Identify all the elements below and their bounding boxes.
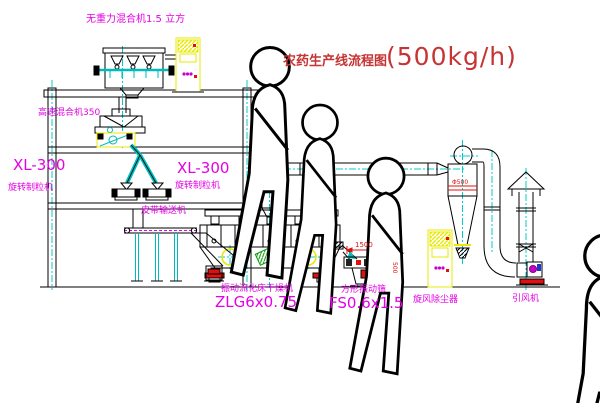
fan-name-label: 引风机 <box>512 295 539 304</box>
granulator-left-unit <box>112 183 140 200</box>
high-speed-mixer <box>95 109 145 147</box>
dryer-model-label: ZLG6x0.75 <box>215 295 297 310</box>
control-cabinet-top <box>172 38 204 92</box>
sieve-length-dimension: 1500 <box>355 242 373 249</box>
person-figure-top <box>231 47 289 278</box>
cyclone-dimension: Φ500 <box>452 180 468 186</box>
fan-suction-duct <box>483 149 516 277</box>
exhaust-duct <box>262 163 448 217</box>
granulator-center-model: XL-300 <box>177 161 229 176</box>
sieve-height-dimension: 500 <box>391 262 397 273</box>
high-speed-mixer-label: 高速混合机350 <box>38 109 100 118</box>
diagram-capacity: (500kg/h) <box>386 44 517 69</box>
induced-draft-fan <box>516 262 548 285</box>
sieve-model-label: FS0.6x1.5 <box>329 296 403 311</box>
granulator-center-name: 旋转制粒机 <box>175 182 220 191</box>
cyclone-dust-collector <box>448 146 483 258</box>
cyclone-name-label: 旋风除尘器 <box>413 296 458 305</box>
control-cabinet-ground <box>428 230 452 287</box>
granulator-left-name: 旋转制粒机 <box>8 184 53 193</box>
gravity-mixer-label: 无重力混合机1.5 立方 <box>86 15 185 25</box>
person-figure-floor2 <box>285 105 337 313</box>
person-figure-ground <box>564 235 600 403</box>
granulator-left-model: XL-300 <box>13 158 65 173</box>
flow-diagram-canvas: 农药生产线流程图 (500kg/h) 无重力混合机1.5 立方 高速混合机350… <box>0 0 600 403</box>
granulator-center-unit <box>143 183 171 200</box>
diagram-title: 农药生产线流程图 <box>283 55 387 68</box>
splitter-pipes <box>127 145 156 183</box>
belt-conveyor <box>124 228 197 281</box>
centerlines <box>52 46 526 290</box>
belt-conveyor-label: 皮带输送机 <box>141 207 186 216</box>
